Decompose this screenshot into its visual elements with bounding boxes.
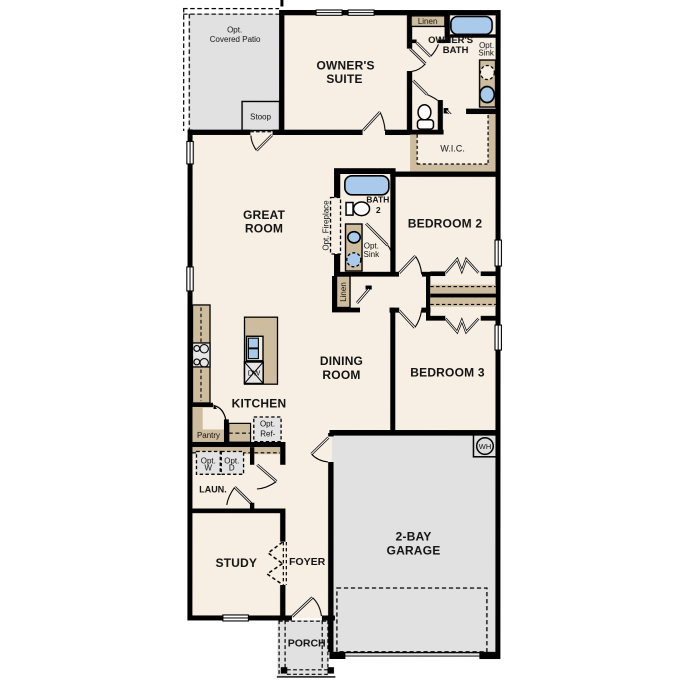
svg-text:Stoop: Stoop	[250, 112, 271, 121]
svg-text:Opt. Fireplace: Opt. Fireplace	[322, 200, 331, 251]
svg-text:SUITE: SUITE	[326, 72, 362, 86]
svg-text:DINING: DINING	[320, 354, 363, 368]
svg-text:BATH: BATH	[443, 45, 469, 56]
svg-text:WH: WH	[479, 442, 492, 451]
svg-text:Linen: Linen	[339, 282, 348, 302]
svg-text:LAUN.: LAUN.	[199, 484, 227, 494]
svg-text:FOYER: FOYER	[289, 556, 326, 568]
svg-text:Opt.: Opt.	[227, 25, 242, 34]
svg-text:Opt.: Opt.	[260, 420, 275, 429]
svg-text:BEDROOM 2: BEDROOM 2	[408, 217, 483, 231]
svg-text:Covered Patio: Covered Patio	[210, 35, 261, 44]
svg-text:STUDY: STUDY	[215, 556, 257, 570]
svg-text:OWNER'S: OWNER'S	[428, 35, 473, 46]
svg-text:ROOM: ROOM	[245, 222, 283, 236]
svg-text:Ref-: Ref-	[260, 429, 275, 438]
svg-text:GREAT: GREAT	[243, 208, 286, 222]
svg-text:2: 2	[376, 205, 381, 215]
svg-text:Pantry: Pantry	[197, 431, 220, 440]
svg-text:W: W	[204, 464, 212, 473]
svg-text:GARAGE: GARAGE	[387, 543, 441, 557]
svg-text:ROOM: ROOM	[322, 368, 360, 382]
svg-text:2-BAY: 2-BAY	[396, 530, 432, 544]
svg-text:OWNER'S: OWNER'S	[316, 58, 374, 72]
svg-text:Opt.: Opt.	[364, 241, 379, 250]
svg-text:Sink: Sink	[478, 49, 495, 58]
svg-text:W.I.C.: W.I.C.	[440, 143, 465, 153]
svg-text:Linen: Linen	[418, 17, 438, 26]
svg-text:BATH: BATH	[366, 195, 389, 205]
svg-text:PORCH: PORCH	[288, 637, 326, 649]
svg-text:Sink: Sink	[364, 250, 381, 259]
svg-text:D: D	[229, 464, 235, 473]
svg-text:DW: DW	[248, 368, 261, 377]
svg-text:BEDROOM 3: BEDROOM 3	[410, 366, 485, 380]
svg-text:KITCHEN: KITCHEN	[232, 396, 287, 410]
